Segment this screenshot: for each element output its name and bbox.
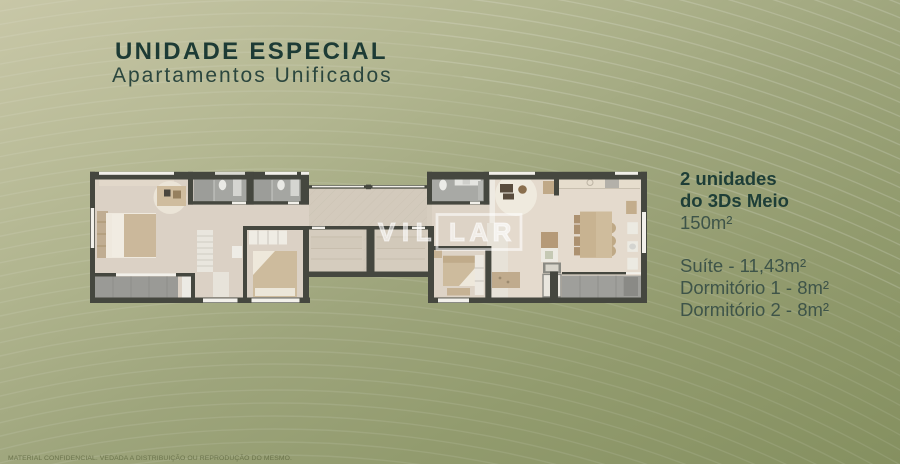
- svg-text:VIL: VIL: [378, 217, 438, 247]
- svg-text:LAR: LAR: [449, 217, 516, 247]
